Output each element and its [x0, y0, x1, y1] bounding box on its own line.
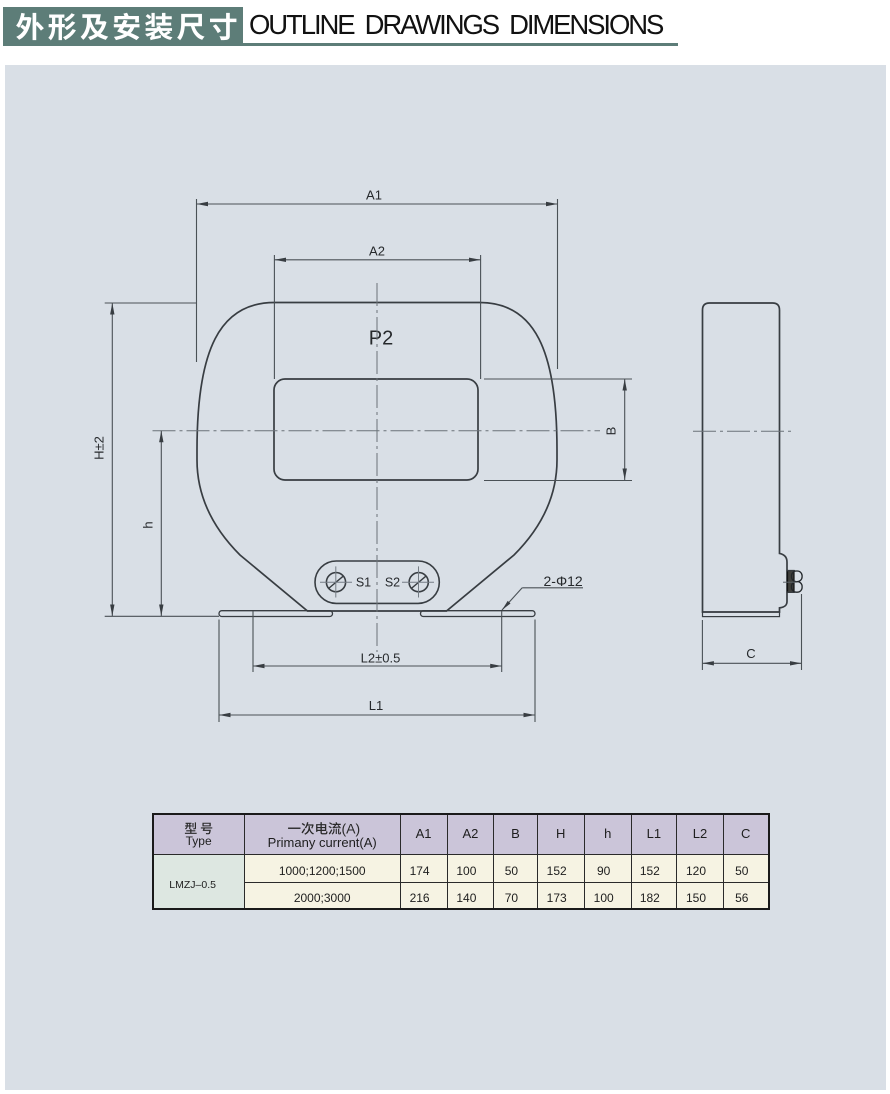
svg-text:(A): (A) — [342, 821, 361, 837]
